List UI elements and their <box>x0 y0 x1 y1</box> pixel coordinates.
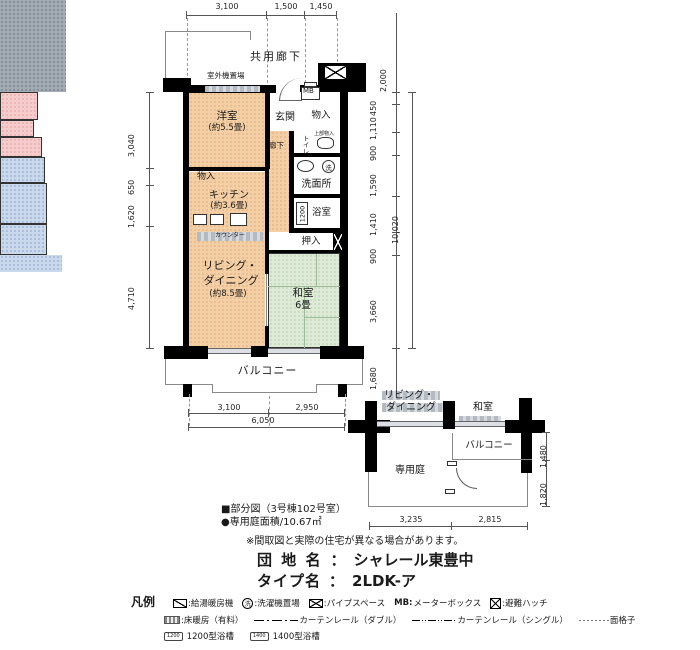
estate-name-label: 団 地 名 <box>257 552 322 569</box>
legend-mb-label: メーターボックス <box>413 597 481 609</box>
wall <box>265 168 269 232</box>
note-partial: ■部分図（3号棟102号室） <box>221 504 346 515</box>
living-label-2: ダイニング <box>195 275 267 287</box>
subplan-dim-right-1: 1,480 <box>539 445 548 468</box>
subplan-garden-line <box>368 506 528 507</box>
curtain-rail-single-icon <box>412 620 456 621</box>
subplan-garden-line <box>368 472 369 507</box>
kitchen-counter <box>0 255 62 272</box>
wall <box>268 250 340 253</box>
wall <box>293 194 340 198</box>
subplan-living-2: ダイニング <box>386 402 436 413</box>
dim-tick <box>392 92 400 93</box>
garden-step <box>447 461 457 466</box>
closet-kitchen <box>0 120 34 137</box>
dim-tick <box>527 522 528 530</box>
legend-rail-double: カーテンレール（ダブル） <box>254 614 401 626</box>
dim-tick <box>344 409 345 417</box>
dim-tick <box>188 423 189 431</box>
tatami-line <box>316 254 317 286</box>
dim-left-1: 3,040 <box>127 134 136 157</box>
wall <box>164 346 208 359</box>
type-name-colon: ： <box>329 573 344 590</box>
dim-right-7: 3,660 <box>369 300 378 323</box>
kitchen-stove <box>210 214 224 225</box>
corridor-line <box>250 31 251 40</box>
toilet-upper-label: 上部物入 <box>314 132 334 138</box>
pipe-space-icon <box>324 65 347 80</box>
mb-legend-icon: MB: <box>394 598 412 608</box>
closet-oshiire <box>0 137 42 157</box>
garden-step <box>445 489 455 494</box>
japanese-room-label: 和室 <box>283 288 323 300</box>
kitchen-label: キッチン <box>194 190 264 201</box>
dim-line-top <box>187 15 337 16</box>
estate-name-value: シャレール東豊中 <box>353 552 473 569</box>
bathroom-label: 浴室 <box>312 208 331 218</box>
tatami-line <box>304 317 340 318</box>
ext-line <box>189 394 190 426</box>
outdoor-unit-hatch <box>205 86 260 92</box>
dim-left-2: 650 <box>127 180 136 195</box>
dim-tick <box>392 132 400 133</box>
dim-tick <box>451 522 452 530</box>
dim-tick <box>392 155 400 156</box>
pipe-space-icon <box>333 233 343 251</box>
balcony-edge <box>316 384 317 393</box>
subplan-washitsu: 和室 <box>473 402 493 413</box>
escape-hatch-icon <box>490 598 501 609</box>
meter-box-icon <box>304 82 317 87</box>
dim-tick <box>408 92 416 93</box>
legend-rail-single-label: カーテンレール（シングル） <box>457 614 568 626</box>
subplan-dim-line-bottom <box>370 526 528 527</box>
dim-tick <box>344 423 345 431</box>
dim-bottom-2: 2,950 <box>287 403 327 412</box>
garden-door-arc <box>456 468 477 489</box>
wall <box>320 346 364 359</box>
legend-rail-double-label: カーテンレール（ダブル） <box>299 614 401 626</box>
meter-box-label: MB <box>303 88 314 96</box>
balcony-side <box>362 359 363 385</box>
closet-kitchen-label: 物入 <box>189 173 223 183</box>
dim-tick <box>392 348 400 349</box>
floor-heating-icon <box>164 616 180 624</box>
legend-floor-heating: :床暖房（有料） <box>164 614 243 626</box>
dim-right-3: 900 <box>369 146 378 161</box>
window <box>268 348 320 354</box>
dim-line-left <box>149 92 150 348</box>
subplan-dim-bottom-1: 3,235 <box>391 515 431 524</box>
wall <box>251 346 268 357</box>
corridor-label: 共用廊下 <box>250 51 302 63</box>
living-rug <box>0 0 66 92</box>
wall <box>521 432 532 473</box>
pipe-space-legend-icon <box>309 599 323 608</box>
dim-right-6: 900 <box>369 249 378 264</box>
subplan-balcony-line <box>452 433 453 460</box>
hallway-label: 廊下 <box>269 142 284 150</box>
dim-right-top: 2,000 <box>379 69 388 92</box>
dim-right-4: 1,590 <box>369 174 378 197</box>
balcony-side <box>165 359 166 385</box>
dim-right-1: 450 <box>369 101 378 116</box>
window <box>455 421 505 427</box>
corridor-line <box>165 31 166 78</box>
legend-washer-label: :洗濯機置場 <box>254 597 299 609</box>
washbasin-icon <box>297 160 314 172</box>
room-toilet <box>0 157 45 183</box>
type-name-line: タイプ名 ： 2LDK-ア <box>257 573 416 590</box>
wall <box>443 401 455 429</box>
dim-right-5: 1,410 <box>369 213 378 236</box>
kitchen-size: (約3.6畳) <box>194 202 264 211</box>
type-name-value: 2LDK-ア <box>352 573 416 590</box>
bathtub-size-tag: 1200 <box>296 202 308 225</box>
legend-title: 凡例 <box>131 596 155 609</box>
curtain-rail-double-icon <box>254 620 298 621</box>
dim-tick <box>146 92 154 93</box>
dim-tick <box>146 226 154 227</box>
bath-1200-icon: 1200 <box>164 632 183 641</box>
oshiire-label: 押入 <box>291 237 331 247</box>
legend-pipe-space: :パイプスペース <box>309 597 385 609</box>
legend-washer: 洗 :洗濯機置場 <box>242 597 299 609</box>
legend-heater: :給湯暖房機 <box>173 597 233 609</box>
balcony-label: バルコニー <box>230 365 305 377</box>
kitchen-sink <box>193 214 207 225</box>
legend-pipe-space-label: :パイプスペース <box>324 597 385 609</box>
counter-label: カウンター <box>200 233 260 240</box>
subplan-dim-bottom-2: 2,815 <box>470 515 510 524</box>
legend-heater-label: :給湯暖房機 <box>188 597 233 609</box>
legend-bath-1200: 1200 1200型浴槽 <box>164 630 234 642</box>
dim-right-total: 10,020 <box>391 216 400 244</box>
balcony-edge <box>212 392 317 393</box>
legend-lattice: 面格子 <box>579 614 636 626</box>
heater-icon <box>173 599 187 608</box>
dim-tick <box>542 506 550 507</box>
wall <box>365 401 377 472</box>
toilet-label: トイレ <box>301 135 308 155</box>
dim-tick <box>542 432 550 433</box>
corridor-line <box>165 31 251 32</box>
ext-line <box>187 18 188 76</box>
living-size: (約8.5畳) <box>193 290 263 299</box>
wall <box>265 232 269 274</box>
western-room-size: (約5.5畳) <box>192 124 262 133</box>
estate-name-colon: ： <box>330 552 345 569</box>
toilet-icon <box>317 137 334 149</box>
subplan-dim-right-2: 1,820 <box>539 483 548 506</box>
dim-right-2: 1,110 <box>369 117 378 140</box>
bath-1400-icon: 1400 <box>250 632 269 641</box>
dim-tick <box>392 104 400 105</box>
dim-bottom-1: 3,100 <box>209 403 249 412</box>
legend-bath-1400-label: 1400型浴槽 <box>273 630 320 642</box>
legend-row-3: 1200 1200型浴槽 1400 1400型浴槽 <box>164 630 320 642</box>
dim-tick <box>408 348 416 349</box>
balcony-pier <box>183 384 192 397</box>
dim-top-3: 1,450 <box>301 2 341 11</box>
dim-line-right-top <box>396 13 397 92</box>
dim-tick <box>146 348 154 349</box>
window <box>377 421 443 427</box>
dim-tick <box>392 255 400 256</box>
dim-top-2: 1,500 <box>266 2 306 11</box>
subplan-living-1: リビング・ <box>384 390 434 401</box>
western-room-label: 洋室 <box>197 111 257 123</box>
wall <box>265 92 270 169</box>
entrance-label: 玄関 <box>275 112 295 123</box>
legend-hatch-label: :避難ハッチ <box>502 597 547 609</box>
window <box>208 348 251 354</box>
dim-line-right-total <box>412 92 413 348</box>
washer-icon: 洗 <box>322 160 335 173</box>
wall <box>183 167 269 171</box>
legend-bath-1400: 1400 1400型浴槽 <box>250 630 320 642</box>
closet-entrance <box>0 92 38 120</box>
ext-line <box>345 394 346 426</box>
dim-left-4: 4,710 <box>127 287 136 310</box>
wall <box>519 398 532 422</box>
room-bathroom <box>0 224 47 255</box>
wall <box>265 326 269 348</box>
dim-top-1: 3,100 <box>207 2 247 11</box>
washroom-label: 洗面所 <box>293 179 340 190</box>
japanese-room-size: 6畳 <box>283 301 323 311</box>
lattice-icon <box>579 620 609 621</box>
dim-line-bottom-total <box>189 427 345 428</box>
dim-line-bottom <box>189 413 345 414</box>
legend-row-2: :床暖房（有料） カーテンレール（ダブル） カーテンレール（シングル） 面格子 <box>164 614 635 626</box>
legend-row-1: :給湯暖房機 洗 :洗濯機置場 :パイプスペース MB: メーターボックス :避… <box>173 597 548 609</box>
floor-plan-canvas: 3,100 1,500 1,450 共用廊下 <box>0 0 700 650</box>
legend-lattice-label: 面格子 <box>610 614 636 626</box>
wall <box>183 92 189 348</box>
estate-name-line: 団 地 名 ： シャレール東豊中 <box>257 552 473 569</box>
dim-right-bottom: 1,680 <box>369 367 378 390</box>
legend-rail-single: カーテンレール（シングル） <box>412 614 568 626</box>
legend-mb: MB: メーターボックス <box>394 597 481 609</box>
subplan-balcony: バルコニー <box>460 441 518 451</box>
legend-bath-1200-label: 1200型浴槽 <box>187 630 234 642</box>
legend-hatch: :避難ハッチ <box>490 597 547 609</box>
outdoor-unit-label: 室外機置場 <box>207 72 245 80</box>
living-label-1: リビング・ <box>195 260 265 272</box>
note-disclaimer: ※間取図と実際の住宅が異なる場合があります。 <box>246 536 463 547</box>
subplan-garden: 専用庭 <box>390 465 430 476</box>
dim-bottom-total: 6,050 <box>243 416 283 425</box>
dim-tick <box>146 185 154 186</box>
entrance-door-arc <box>279 78 302 101</box>
dim-left-3: 1,620 <box>127 205 136 228</box>
kitchen-unit <box>230 213 247 226</box>
closet-entrance-label: 物入 <box>302 111 340 121</box>
subplan-balcony-line <box>452 459 532 460</box>
note-garden-area: ●専用庭面積/10.67㎡ <box>221 517 322 528</box>
dim-tick <box>369 522 370 530</box>
legend-floor-heating-label: :床暖房（有料） <box>181 614 243 626</box>
wall <box>340 92 348 348</box>
dim-tick <box>392 196 400 197</box>
ext-line <box>305 18 306 83</box>
dim-tick <box>146 168 154 169</box>
type-name-label: タイプ名 <box>257 573 321 590</box>
dim-tick <box>188 409 189 417</box>
ext-line <box>337 18 338 62</box>
washer-place-icon: 洗 <box>242 598 253 609</box>
bathtub-size-label: 1200 <box>298 205 306 222</box>
room-washroom <box>0 183 47 224</box>
subplan-garden-line <box>527 473 528 507</box>
